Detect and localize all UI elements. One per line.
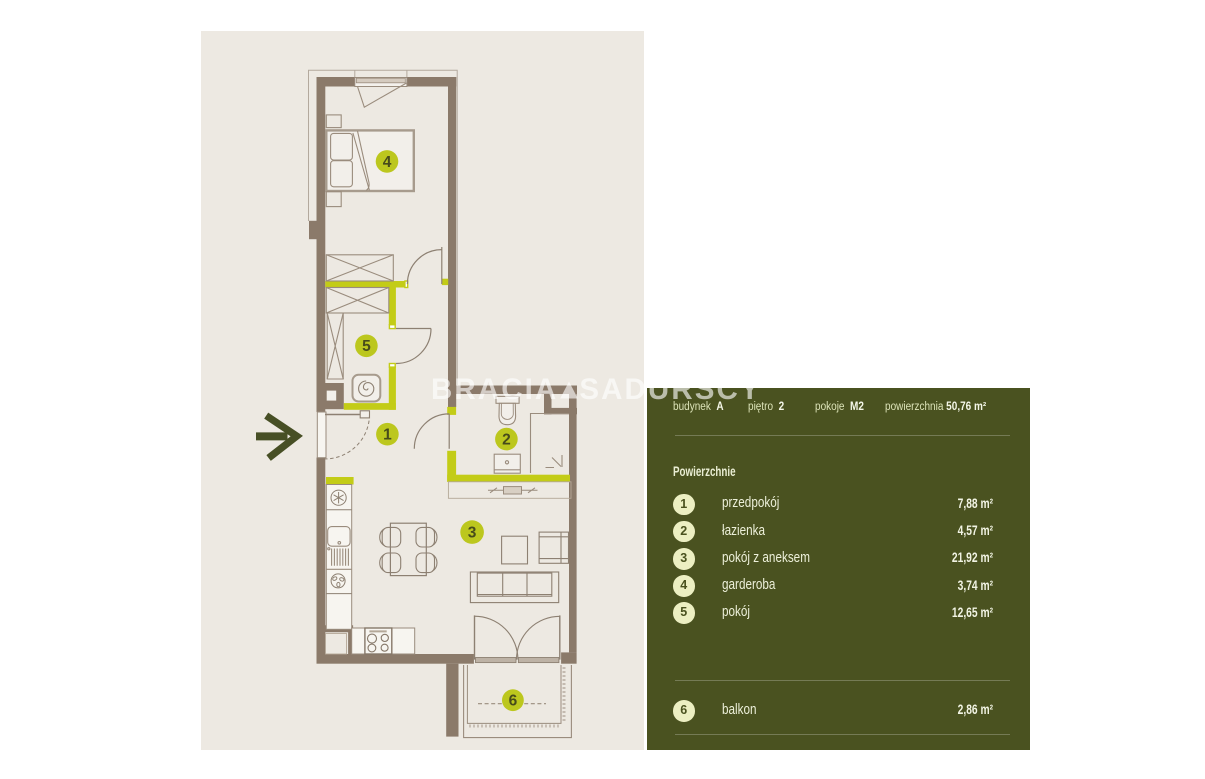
- svg-text:2: 2: [502, 432, 511, 449]
- svg-text:4: 4: [383, 154, 392, 171]
- svg-text:6: 6: [509, 693, 518, 710]
- svg-text:1: 1: [383, 427, 392, 444]
- svg-text:5: 5: [362, 338, 371, 355]
- svg-text:3: 3: [468, 525, 477, 542]
